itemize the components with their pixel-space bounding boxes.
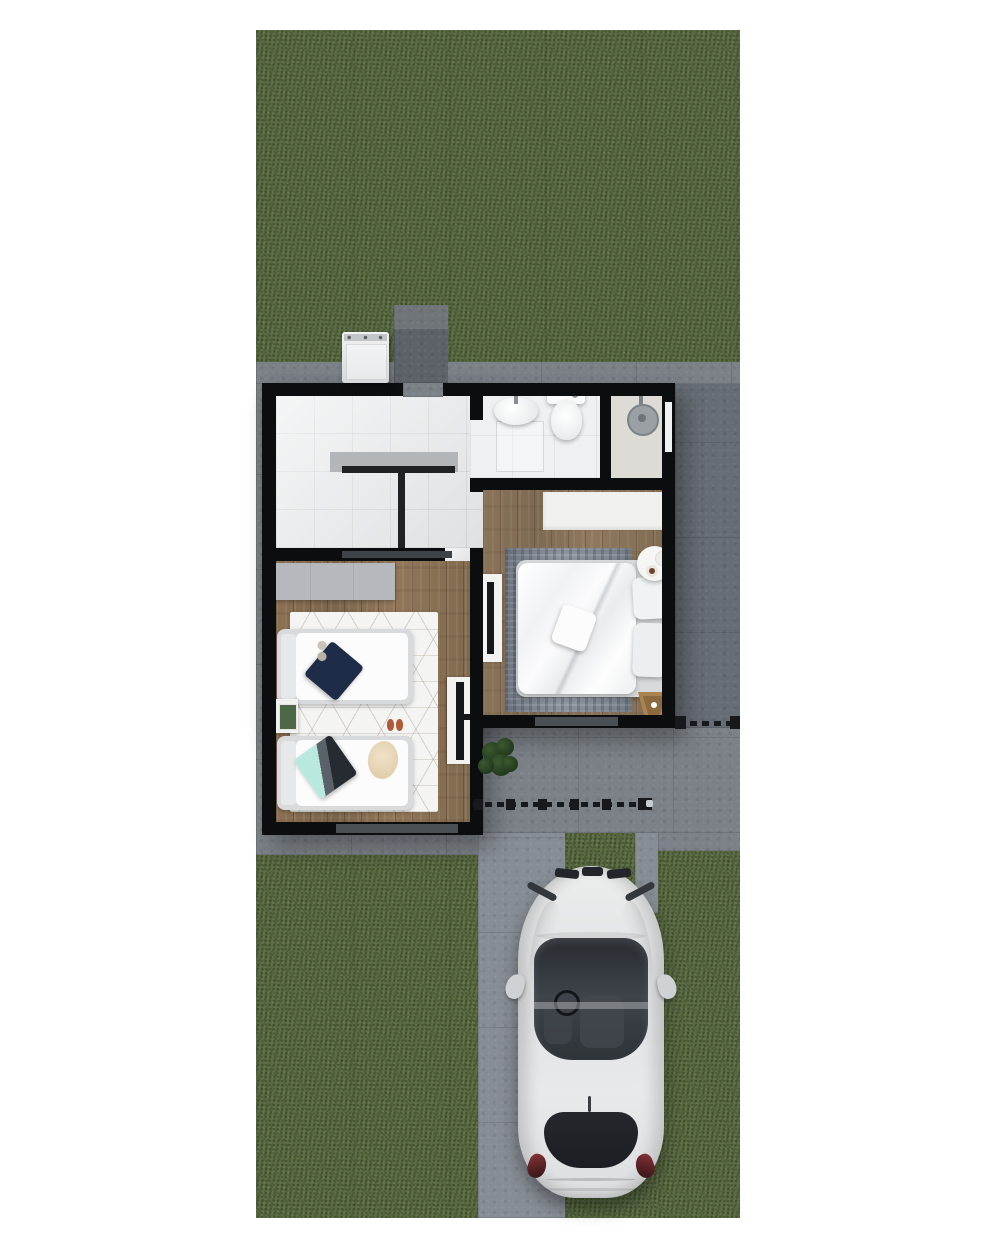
front-lawn-right [658,851,740,1218]
slipper-left [387,719,394,731]
car [518,866,664,1198]
car-antenna [588,1096,591,1112]
car-bumper-line [540,1188,642,1191]
gate-post-3 [538,799,547,810]
side-table-coffee [649,568,655,574]
kids-bed1-headboard [281,634,296,699]
shower-head-center [638,414,646,422]
kids-bed1-items [315,640,329,662]
kids-dresser [267,563,395,600]
wall-spine-top [470,383,483,420]
washer-lid [346,344,387,380]
wall-spine-south [470,548,483,835]
vanity-outline [496,421,544,472]
front-lawn-left [256,855,478,1218]
entry-court [483,728,740,833]
kitchen-counter-edge [342,466,455,473]
kids-sliding-door [336,824,458,833]
gate-post-1 [474,799,483,810]
driveway-gate-rail [473,802,650,807]
car-roof-bar [534,1002,648,1009]
car-trunk-seam [546,1178,636,1181]
nightstand-green-book [279,704,297,730]
kids-kitchen-door [342,551,452,558]
kids-bed2-headboard [281,741,296,805]
wall-left [262,383,276,835]
kitchen-counter-side [398,473,405,548]
utility-pad-highlight [394,305,448,329]
master-sliding-door [535,717,618,726]
washer-control-panel [344,334,387,341]
gate-post-4 [570,799,579,810]
wall-bathroom-south [470,478,675,490]
gate-post-5 [602,799,611,810]
gate-handle [646,800,653,807]
wall-top-west [262,383,403,396]
back-door-threshold [403,383,443,397]
top-concrete-strip [256,362,740,384]
car-grille-slot-3 [607,868,632,879]
potted-plant [478,736,520,780]
back-lawn [256,30,740,362]
toilet-bowl [551,400,582,440]
side-fence-post-2 [730,716,740,729]
gate-post-2 [506,799,515,810]
car-grille-slot-2 [582,867,603,876]
floorplan-render [0,0,1000,1250]
shower-window [665,402,672,452]
south-walkway [256,835,483,855]
right-court-edge [658,833,740,851]
master-wardrobe [543,492,673,530]
wall-bath-shower-divider [600,383,611,490]
kids-tv-icon [456,682,464,760]
side-fence-post-1 [675,716,686,729]
master-tv-icon [487,582,494,654]
right-side-walkway [675,384,740,728]
gold-stool-dot [651,702,657,708]
slipper-right [396,719,403,731]
car-rear-window [544,1112,638,1168]
